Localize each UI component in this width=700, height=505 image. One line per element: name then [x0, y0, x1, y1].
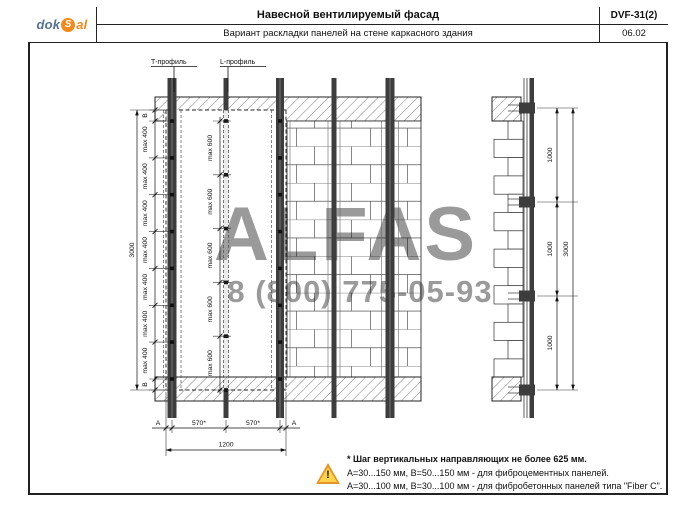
code-cell: DVF-31(2) 06.02 — [600, 7, 668, 42]
svg-text:B: B — [142, 382, 149, 387]
sheet-number: 06.02 — [622, 28, 646, 39]
title-cell: Навесной вентилируемый фасад Вариант рас… — [97, 7, 600, 42]
svg-text:max 600: max 600 — [207, 296, 214, 322]
section-view: 1000 1000 1000 3000 — [492, 78, 578, 418]
title-block: dokSal Навесной вентилируемый фасад Вари… — [28, 7, 668, 43]
svg-text:max 400: max 400 — [142, 200, 149, 226]
note-line-1: * Шаг вертикальных направляющих не более… — [347, 453, 662, 467]
section-wall — [494, 121, 523, 377]
watermark-phone: 8 (800) 775-05-93 — [227, 274, 492, 309]
svg-text:max 400: max 400 — [142, 311, 149, 337]
svg-text:1000: 1000 — [547, 147, 554, 162]
svg-text:1000: 1000 — [547, 241, 554, 256]
note-line-3: А=30...100 мм, В=30...100 мм - для фибро… — [347, 480, 662, 494]
warning-icon: ! — [316, 463, 340, 484]
svg-text:max 400: max 400 — [142, 347, 149, 373]
watermark-brand: ALFAS — [214, 192, 478, 277]
svg-text:3000: 3000 — [563, 241, 570, 256]
note-line-2: А=30...150 мм, В=50...150 мм - для фибро… — [347, 467, 662, 481]
profile-2-l-hidden — [224, 78, 229, 418]
svg-text:max 600: max 600 — [207, 350, 214, 376]
svg-text:max 600: max 600 — [207, 135, 214, 161]
company-logo: dokSal — [37, 17, 88, 32]
document-code: DVF-31(2) — [611, 10, 658, 21]
l-profile-label: L-профиль — [220, 59, 256, 66]
svg-text:max 400: max 400 — [142, 274, 149, 300]
front-view: ALFAS 8 (800) 775-05-93 — [129, 59, 493, 456]
svg-text:max 400: max 400 — [142, 237, 149, 263]
footnotes: ! * Шаг вертикальных направляющих не бол… — [316, 453, 668, 494]
svg-text:B: B — [142, 113, 149, 118]
logo-ball-icon: S — [61, 18, 75, 32]
svg-text:A: A — [292, 420, 297, 427]
logo-text-dok: dok — [37, 17, 61, 32]
note-text-block: * Шаг вертикальных направляющих не более… — [347, 453, 662, 494]
svg-text:1200: 1200 — [218, 442, 233, 449]
svg-text:max 400: max 400 — [142, 163, 149, 189]
svg-text:3000: 3000 — [129, 242, 136, 257]
watermark: ALFAS 8 (800) 775-05-93 — [214, 192, 493, 309]
section-profile — [524, 78, 534, 418]
document-subtitle: Вариант раскладки панелей на стене карка… — [223, 28, 473, 39]
t-profile-label: Т-профиль — [151, 59, 187, 66]
svg-text:max 600: max 600 — [207, 242, 214, 268]
svg-text:A: A — [156, 420, 161, 427]
svg-text:570*: 570* — [246, 420, 260, 427]
svg-text:570*: 570* — [192, 420, 206, 427]
logo-text-al: al — [76, 17, 87, 32]
document-title: Навесной вентилируемый фасад — [257, 9, 439, 21]
bottom-slab-band — [155, 377, 421, 401]
svg-text:max 400: max 400 — [142, 126, 149, 152]
logo-cell: dokSal — [28, 7, 97, 42]
datasheet-page: ALFAS 8 (800) 775-05-93 — [0, 0, 700, 505]
facade-layout-drawing: ALFAS 8 (800) 775-05-93 — [0, 0, 700, 505]
svg-text:1000: 1000 — [547, 335, 554, 350]
svg-text:max 600: max 600 — [207, 188, 214, 214]
section-dims: 1000 1000 1000 3000 — [537, 108, 578, 390]
